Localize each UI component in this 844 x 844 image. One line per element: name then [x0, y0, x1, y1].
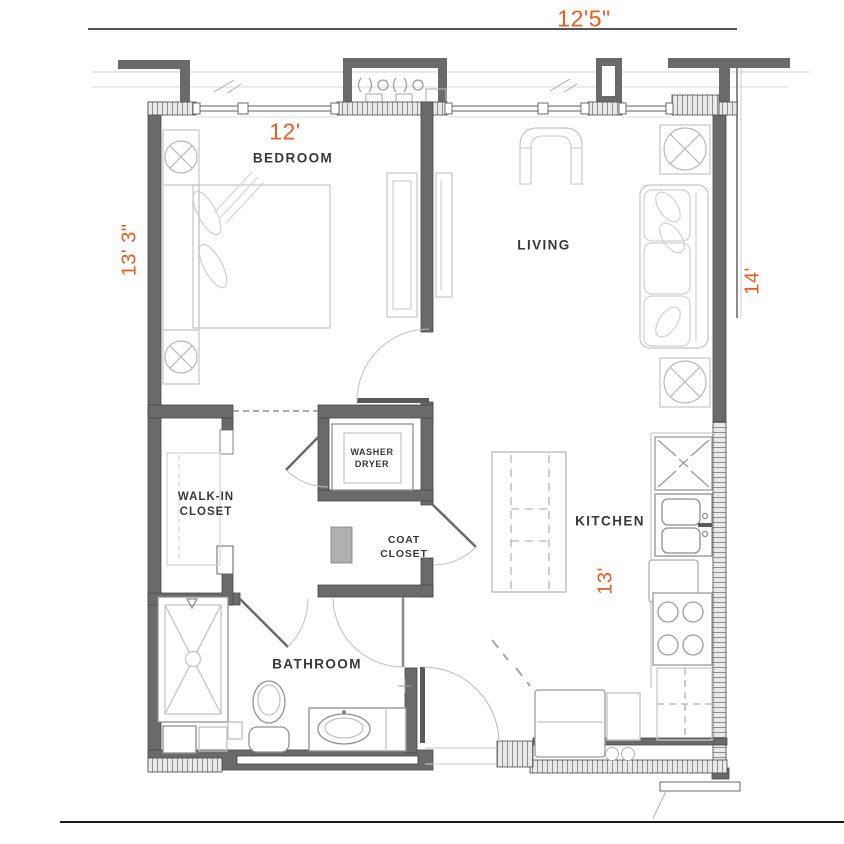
soffit-dashes — [492, 640, 530, 686]
side-table-bottom — [660, 358, 710, 407]
sofa — [640, 185, 708, 348]
bedroom-furniture — [163, 130, 452, 384]
dimension-top: 12'5" — [557, 6, 610, 33]
room-label-walk-in-closet-line2: CLOSET — [180, 506, 233, 518]
room-label-coat-closet-line2: CLOSET — [380, 548, 427, 560]
room-label-walk-in-closet-line1: WALK-IN — [178, 491, 234, 503]
linen-cabinets — [163, 722, 242, 753]
bathroom-fixtures — [158, 597, 412, 753]
dimension-bedroom-width: 12' — [269, 119, 300, 146]
shower — [158, 597, 228, 722]
bedroom-door — [357, 329, 429, 403]
armchair — [520, 128, 582, 185]
entry-door — [420, 667, 499, 764]
living-furniture — [520, 125, 710, 407]
tv-console — [436, 173, 452, 297]
room-label-bedroom: BEDROOM — [253, 151, 333, 166]
walk-in-closet-door — [217, 546, 233, 574]
coat-closet-door — [433, 505, 476, 565]
room-label-bathroom: BATHROOM — [272, 657, 362, 672]
side-table-top — [660, 125, 710, 174]
room-label-living: LIVING — [517, 238, 570, 253]
corner-cabinet-dashed — [657, 668, 712, 740]
room-label-coat-closet-line1: COAT — [388, 534, 420, 546]
nightstands — [163, 130, 199, 384]
bathroom-door — [240, 599, 308, 647]
planter-symbols — [359, 78, 447, 104]
dresser — [387, 173, 417, 317]
kitchen-fixtures — [492, 433, 713, 757]
dimension-kitchen-length: 13' — [595, 567, 618, 595]
lamp-icon — [165, 141, 197, 373]
vanity — [309, 708, 406, 751]
dimension-left-height: 13' 3" — [119, 224, 142, 277]
dimension-right-height: 14' — [742, 267, 765, 295]
small-cabinet — [607, 693, 640, 740]
pantry-cabinet — [655, 437, 712, 490]
floor-plan: BEDROOM LIVING KITCHEN BATHROOM WALK-IN … — [0, 0, 844, 844]
refrigerator — [535, 690, 605, 757]
floorplan-drawing — [0, 0, 844, 844]
stove — [653, 593, 712, 665]
kitchen-island — [492, 452, 566, 592]
exterior-walls — [148, 95, 737, 779]
room-label-kitchen: KITCHEN — [575, 514, 645, 529]
room-label-washer-dryer-line2: DRYER — [355, 459, 389, 469]
bed — [188, 172, 330, 328]
washer-dryer-unit — [332, 424, 413, 490]
room-label-washer-dryer-line1: WASHER — [350, 447, 393, 457]
toilet — [249, 681, 289, 752]
kitchen-sink — [655, 494, 712, 556]
